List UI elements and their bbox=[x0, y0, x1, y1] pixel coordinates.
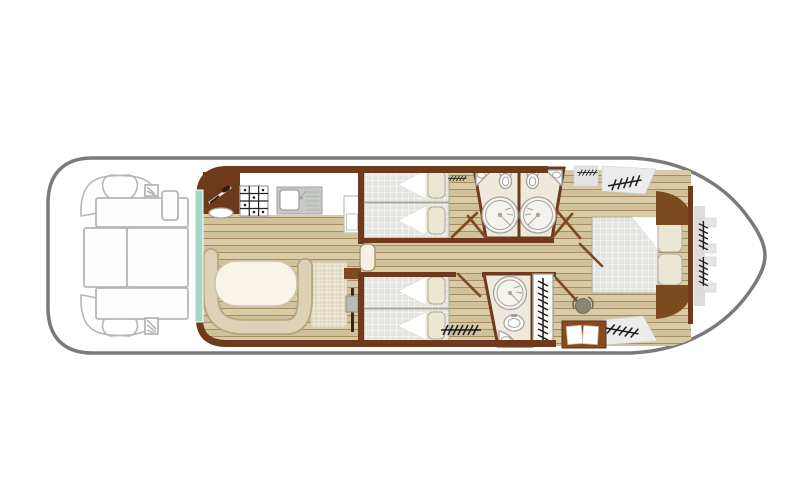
aft-deck bbox=[81, 175, 188, 336]
side-step bbox=[162, 191, 178, 220]
stove-icon bbox=[240, 186, 268, 216]
patio-door bbox=[195, 190, 203, 322]
deck-table bbox=[84, 228, 127, 287]
round-shower-icon bbox=[520, 197, 556, 233]
pillow bbox=[428, 171, 445, 198]
tall-wardrobe bbox=[533, 274, 553, 346]
washbasin-icon bbox=[504, 314, 524, 331]
paper bbox=[582, 326, 598, 345]
corridor-door bbox=[360, 244, 375, 271]
pillow bbox=[428, 312, 445, 339]
boat-floor-plan bbox=[0, 0, 810, 500]
pillow bbox=[428, 277, 445, 304]
dinette-table bbox=[215, 261, 297, 306]
tiled-area bbox=[311, 262, 347, 328]
round-shower-icon bbox=[482, 197, 518, 233]
pillow bbox=[658, 221, 682, 252]
deck-table bbox=[127, 228, 188, 287]
sink-icon bbox=[277, 187, 322, 214]
heater bbox=[346, 296, 358, 312]
pillow bbox=[428, 207, 445, 234]
paper bbox=[566, 325, 583, 344]
boat-floor-plan-page bbox=[0, 0, 810, 500]
round-shower-icon bbox=[494, 277, 527, 310]
saloon bbox=[211, 256, 361, 332]
desk bbox=[562, 321, 606, 348]
pillow bbox=[658, 254, 682, 285]
sun-pad bbox=[96, 288, 188, 319]
cupboard bbox=[344, 196, 360, 233]
galley-bowl bbox=[209, 208, 233, 218]
vent-grille-icon bbox=[145, 318, 158, 334]
vent-grille-icon bbox=[145, 185, 158, 196]
bow-bulkhead bbox=[688, 186, 693, 324]
